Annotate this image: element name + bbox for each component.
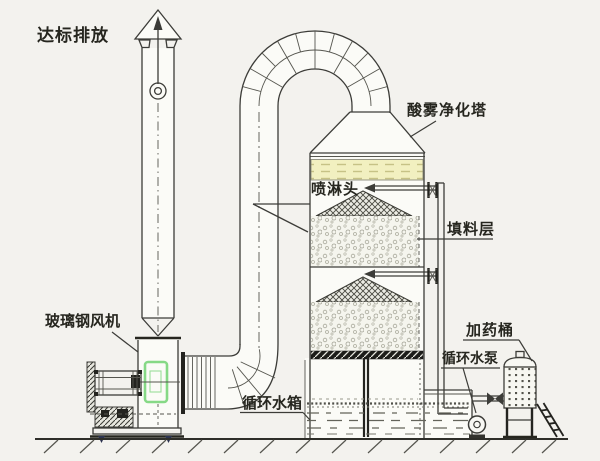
shaft-coupling [131,375,140,388]
label-circulating-pump: 循环水泵 [442,352,498,366]
ground [35,439,568,453]
dosing-barrel [503,352,564,438]
fan-base [90,428,184,443]
dosing-line [472,393,505,406]
label-tower: 酸雾净化塔 [407,103,487,118]
label-discharge: 达标排放 [37,28,109,45]
label-frp-fan: 玻璃钢风机 [45,314,120,329]
demister-band [311,160,423,181]
circulating-pump [469,416,486,438]
packing-layer-1 [311,216,419,267]
label-spray-head: 喷淋头 [311,182,359,197]
label-dosing-barrel: 加药桶 [466,323,514,338]
diagram-linework [0,0,600,461]
circulation-riser [429,182,469,414]
packing-support-grate [311,351,423,359]
barrel-ladder [537,403,564,437]
label-packing-layer: 填料层 [447,222,495,237]
label-circulating-tank: 循环水箱 [242,396,302,411]
packing-layer-2 [311,302,419,351]
process-diagram: 达标排放 酸雾净化塔 喷淋头 填料层 加药桶 循环水泵 循环水箱 玻璃钢风机 [0,0,600,461]
